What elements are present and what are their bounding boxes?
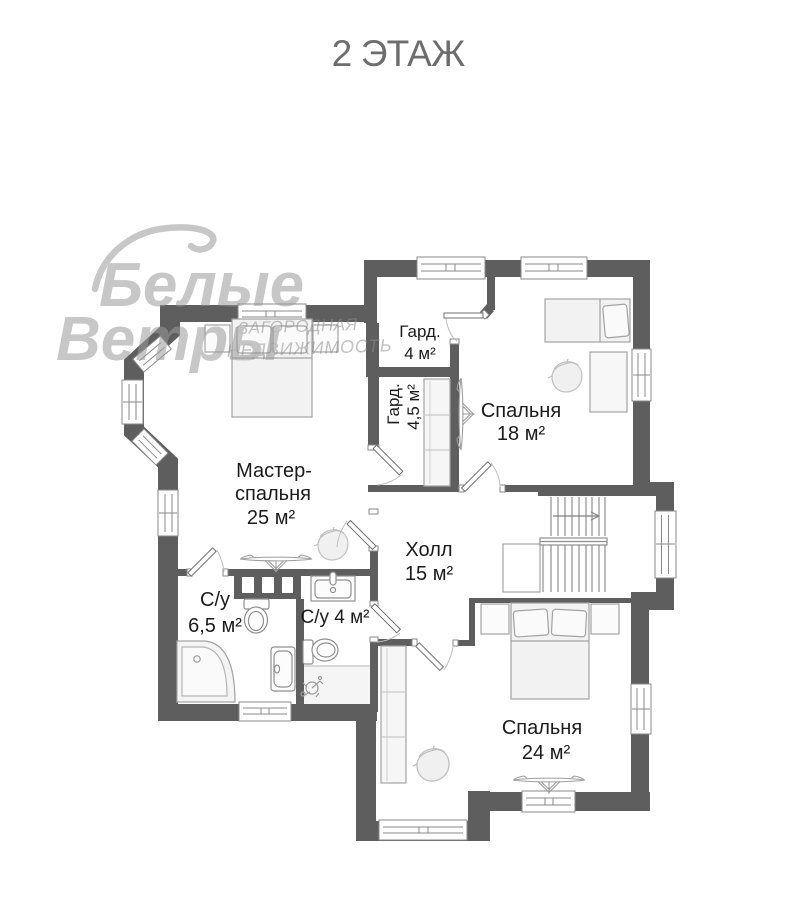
svg-text:24 м²: 24 м²: [522, 742, 571, 764]
svg-text:6,5 м²: 6,5 м²: [188, 615, 242, 637]
svg-text:С/у: С/у: [200, 589, 230, 611]
svg-text:спальня: спальня: [235, 483, 311, 505]
svg-text:Гард.: Гард.: [399, 322, 440, 341]
svg-text:4,5 м²: 4,5 м²: [404, 384, 423, 430]
svg-text:Гард.: Гард.: [384, 383, 403, 424]
svg-text:2 ЭТАЖ: 2 ЭТАЖ: [332, 33, 466, 74]
svg-text:Спальня: Спальня: [481, 400, 561, 422]
svg-text:С/у 4 м²: С/у 4 м²: [300, 607, 369, 628]
svg-text:18 м²: 18 м²: [497, 423, 546, 445]
svg-text:Мастер-: Мастер-: [236, 460, 312, 482]
svg-text:4 м²: 4 м²: [404, 344, 436, 363]
svg-text:Спальня: Спальня: [502, 717, 582, 739]
svg-text:15 м²: 15 м²: [405, 563, 454, 585]
svg-text:Холл: Холл: [405, 539, 452, 561]
svg-text:25 м²: 25 м²: [247, 507, 296, 529]
